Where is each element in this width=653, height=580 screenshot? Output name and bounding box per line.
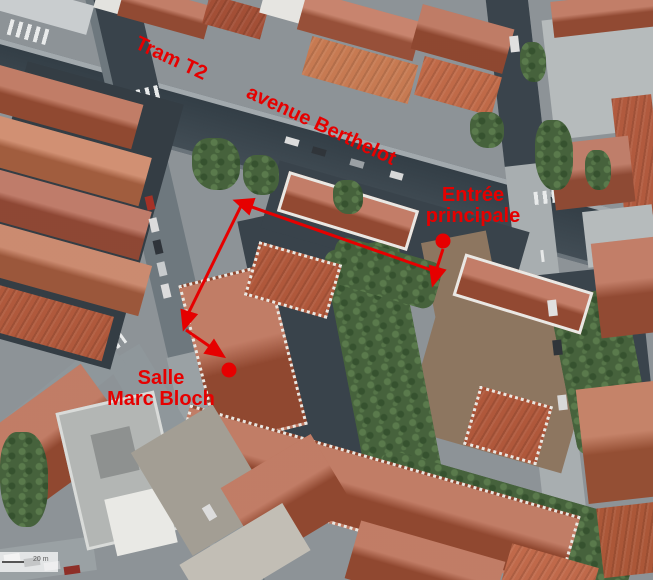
arrow-line-salle (186, 330, 212, 348)
label-salle-marc-bloch: Salle Marc Bloch (107, 368, 215, 410)
route-annotations (0, 0, 653, 580)
label-entree-line2: principale (426, 206, 520, 227)
arrow-line-street (188, 206, 241, 314)
scale-bar-line (2, 561, 24, 563)
label-entree-principale: Entrée principale (426, 185, 520, 227)
label-salle-line2: Marc Bloch (107, 389, 215, 410)
label-entree-line1: Entrée (426, 185, 520, 206)
salle-marker-dot (222, 363, 237, 378)
arrow-head-salle (206, 341, 223, 356)
arrow-head-down-junction (431, 267, 444, 284)
scale-bar-text: 20 m (33, 556, 49, 563)
arrow-head-down-street (182, 311, 195, 328)
arrow-line-long (249, 206, 434, 271)
entrance-marker-dot (436, 234, 451, 249)
aerial-map: Tram T2 avenue Berthelot Entrée principa… (0, 0, 653, 580)
scale-bar: 20 m (0, 552, 58, 572)
label-salle-line1: Salle (107, 368, 215, 389)
